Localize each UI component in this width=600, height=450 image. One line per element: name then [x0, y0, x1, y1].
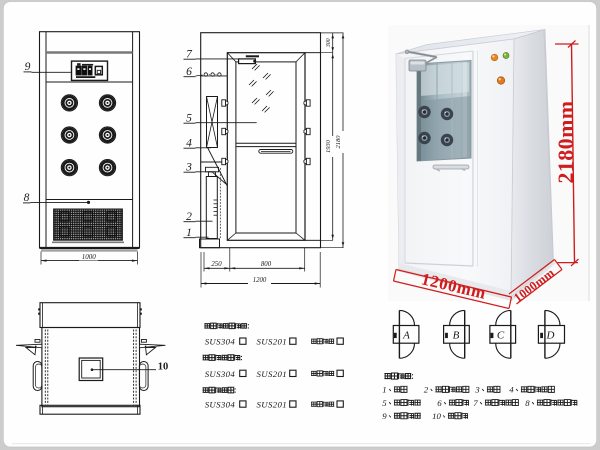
svg-text:1: 1 — [382, 385, 386, 395]
svg-text:3: 3 — [474, 385, 480, 395]
svg-text:2: 2 — [424, 385, 429, 395]
svg-text:2180mm: 2180mm — [553, 100, 578, 183]
svg-text:250: 250 — [211, 261, 222, 268]
svg-text:SUS201: SUS201 — [257, 369, 287, 379]
svg-text:8: 8 — [24, 192, 30, 204]
svg-text:SUS304: SUS304 — [205, 400, 236, 410]
svg-text:5: 5 — [382, 398, 387, 408]
svg-text:10: 10 — [158, 361, 169, 372]
svg-text:4: 4 — [509, 385, 514, 395]
svg-text:A: A — [402, 329, 410, 341]
svg-text:6: 6 — [437, 398, 442, 408]
svg-text:10: 10 — [432, 411, 441, 421]
svg-text:300: 300 — [326, 38, 332, 48]
svg-text:6: 6 — [186, 66, 192, 78]
svg-text:800: 800 — [261, 261, 272, 268]
svg-text:B: B — [453, 329, 460, 341]
svg-text:1930: 1930 — [325, 139, 332, 153]
svg-text:8: 8 — [525, 398, 530, 408]
svg-text:9: 9 — [25, 61, 31, 73]
svg-text:D: D — [546, 329, 555, 341]
svg-text:5: 5 — [186, 113, 192, 125]
svg-text:1200: 1200 — [253, 277, 267, 284]
svg-text:2180: 2180 — [335, 135, 342, 149]
svg-text:4: 4 — [186, 138, 192, 150]
svg-text:SUS201: SUS201 — [257, 400, 287, 410]
svg-text:SUS304: SUS304 — [205, 337, 236, 347]
svg-text:3: 3 — [185, 162, 192, 174]
svg-text:2: 2 — [186, 211, 192, 223]
svg-text:1: 1 — [186, 227, 192, 239]
svg-text:C: C — [497, 329, 505, 341]
svg-text:7: 7 — [473, 398, 478, 408]
svg-text:SUS304: SUS304 — [205, 369, 236, 379]
svg-text:SUS201: SUS201 — [257, 337, 287, 347]
svg-text:1000: 1000 — [82, 253, 97, 261]
svg-text:9: 9 — [382, 411, 387, 421]
